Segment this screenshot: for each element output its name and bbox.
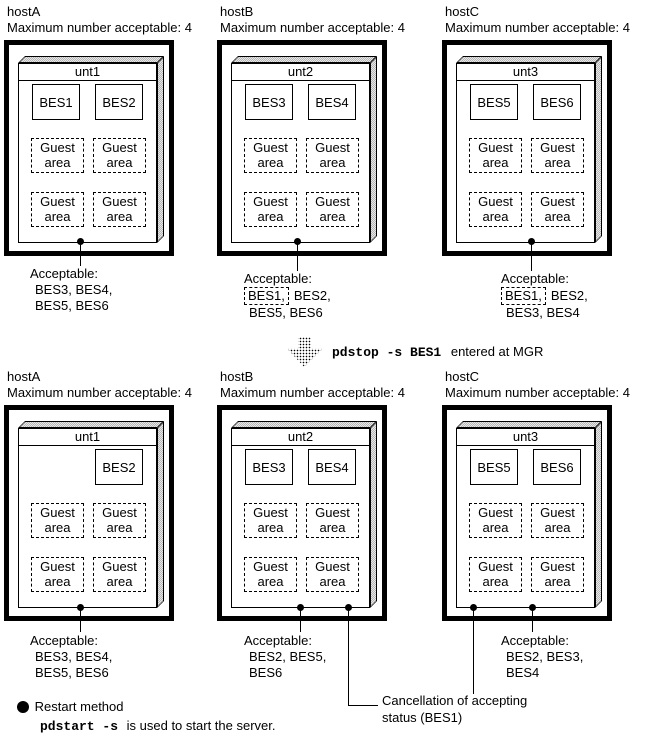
unit-3d-top-edge: [231, 56, 377, 63]
guest-area-grid: GuestareaGuestareaGuestareaGuestarea: [244, 503, 359, 592]
acceptable-title: Acceptable:: [30, 266, 112, 282]
guest-area-label: area: [32, 574, 83, 589]
acceptable-servers-text: BES5, BES6: [35, 665, 109, 680]
connector-dot: [528, 238, 535, 245]
bes-slot: BES5: [470, 84, 518, 120]
guest-area-label: area: [32, 209, 83, 224]
command-text: pdstop -s BES1: [332, 345, 441, 360]
guest-area-grid: GuestareaGuestareaGuestareaGuestarea: [469, 138, 584, 227]
connector-line: [531, 242, 532, 271]
unit-3d-right-edge: [157, 421, 164, 608]
bes-server-box: BES5: [470, 449, 518, 485]
bes-server-box: BES2: [95, 449, 143, 485]
guest-area-box: Guestarea: [531, 138, 584, 173]
connector-dot: [529, 604, 536, 611]
guest-area-label: Guest: [532, 505, 583, 520]
guest-area-label: Guest: [94, 559, 145, 574]
acceptable-line: BES2, BES3,: [506, 649, 583, 665]
acceptable-servers-text: BES2, BES3,: [506, 649, 583, 664]
host-box: unt2 BES3BES4 GuestareaGuestareaGuestare…: [217, 405, 387, 621]
bes-slot: BES4: [308, 84, 356, 120]
guest-area-label: Guest: [532, 559, 583, 574]
acceptable-line: BES5, BES6: [35, 665, 112, 681]
guest-area-box: Guestarea: [531, 557, 584, 592]
guest-area-grid: GuestareaGuestareaGuestareaGuestarea: [244, 138, 359, 227]
acceptable-line: BES4: [506, 665, 583, 681]
bes-slot: [32, 449, 80, 485]
guest-area-label: Guest: [94, 140, 145, 155]
diagram-canvas: pdstop -s BES1 entered at MGR Cancellati…: [0, 0, 652, 743]
acceptable-servers-text: BES5, BES6: [35, 298, 109, 313]
host-box: unt1 BES1BES2 GuestareaGuestareaGuestare…: [4, 40, 174, 256]
acceptable-servers-text: BES3, BES4,: [35, 282, 112, 297]
acceptable-title: Acceptable:: [244, 633, 326, 649]
connector-dot: [470, 604, 477, 611]
acceptable-title: Acceptable:: [244, 271, 331, 287]
restart-description: is used to start the server.: [127, 718, 276, 733]
bes-row: BES5BES6: [470, 449, 581, 485]
guest-area-grid: GuestareaGuestareaGuestareaGuestarea: [469, 503, 584, 592]
guest-area-label: area: [94, 520, 145, 535]
host-name-label: hostC: [445, 4, 479, 19]
guest-area-box: Guestarea: [244, 138, 297, 173]
guest-area-label: Guest: [470, 194, 521, 209]
guest-area-box: Guestarea: [469, 503, 522, 538]
connector-dot: [77, 238, 84, 245]
guest-area-grid: GuestareaGuestareaGuestareaGuestarea: [31, 503, 146, 592]
unit-3d-right-edge: [595, 421, 602, 608]
acceptable-note: Acceptable: BES2, BES3, BES4: [499, 633, 583, 681]
restart-title: Restart method: [35, 699, 124, 714]
guest-area-box: Guestarea: [31, 557, 84, 592]
bes-server-box: BES5: [470, 84, 518, 120]
cancellation-line: Cancellation of accepting: [382, 692, 527, 709]
guest-area-label: area: [307, 520, 358, 535]
unit-3d-top-edge: [18, 56, 164, 63]
guest-area-label: Guest: [307, 505, 358, 520]
host-name-label: hostB: [220, 369, 253, 384]
unit-name-label: unt1: [19, 64, 156, 81]
guest-area-box: Guestarea: [93, 557, 146, 592]
acceptable-note: Acceptable: BES2, BES5, BES6: [242, 633, 326, 681]
acceptable-servers-text: BES5, BES6: [249, 305, 323, 320]
connector-dot: [77, 604, 84, 611]
host-name-label: hostB: [220, 4, 253, 19]
guest-area-label: area: [94, 155, 145, 170]
unit-3d-top-edge: [456, 421, 602, 428]
guest-area-label: Guest: [245, 140, 296, 155]
guest-area-box: Guestarea: [531, 192, 584, 227]
guest-area-box: Guestarea: [93, 138, 146, 173]
bes-slot: BES3: [245, 449, 293, 485]
connector-line: [473, 608, 474, 694]
connector-dot: [297, 604, 304, 611]
guest-area-box: Guestarea: [306, 192, 359, 227]
bes-slot: BES5: [470, 449, 518, 485]
host-box: unt1 BES2 GuestareaGuestareaGuestareaGue…: [4, 405, 174, 621]
guest-area-label: area: [245, 520, 296, 535]
unit-3d-right-edge: [370, 421, 377, 608]
unit-name-label: unt3: [457, 64, 594, 81]
guest-area-label: area: [32, 155, 83, 170]
bes-row: BES3BES4: [245, 449, 356, 485]
guest-area-label: Guest: [32, 140, 83, 155]
acceptable-line: BES6: [249, 665, 326, 681]
guest-area-label: Guest: [94, 194, 145, 209]
unit-3d-right-edge: [370, 56, 377, 243]
bes-slot: BES2: [95, 84, 143, 120]
guest-area-box: Guestarea: [469, 557, 522, 592]
bes-slot: BES6: [533, 449, 581, 485]
down-arrow-icon: [287, 337, 323, 367]
unit-name-label: unt3: [457, 429, 594, 446]
bes-row: BES2: [32, 449, 143, 485]
acceptable-servers-text: BES2, BES5,: [249, 649, 326, 664]
guest-area-label: area: [307, 574, 358, 589]
unit-box: unt1 BES2 GuestareaGuestareaGuestareaGue…: [18, 428, 157, 608]
bes-server-box: BES4: [308, 84, 356, 120]
acceptable-servers-text: BES2,: [294, 288, 331, 303]
guest-area-label: area: [245, 574, 296, 589]
guest-area-box: Guestarea: [469, 192, 522, 227]
unit-box: unt2 BES3BES4 GuestareaGuestareaGuestare…: [231, 63, 370, 243]
connector-line: [80, 242, 81, 266]
guest-area-box: Guestarea: [31, 192, 84, 227]
connector-line: [348, 705, 378, 706]
guest-area-label: Guest: [32, 505, 83, 520]
acceptable-note: Acceptable: BES3, BES4, BES5, BES6: [28, 266, 112, 314]
guest-area-label: Guest: [470, 505, 521, 520]
guest-area-label: Guest: [245, 194, 296, 209]
bullet-icon: [17, 701, 29, 713]
guest-area-box: Guestarea: [244, 192, 297, 227]
guest-area-box: Guestarea: [31, 138, 84, 173]
guest-area-box: Guestarea: [93, 503, 146, 538]
bes-slot: BES2: [95, 449, 143, 485]
guest-area-box: Guestarea: [93, 192, 146, 227]
acceptable-title: Acceptable:: [501, 271, 588, 287]
bes-row: BES5BES6: [470, 84, 581, 120]
acceptable-note: Acceptable: BES1,BES2, BES5, BES6: [242, 271, 331, 321]
guest-area-label: area: [532, 155, 583, 170]
cancellation-note: Cancellation of accepting status (BES1): [382, 692, 527, 726]
unit-3d-right-edge: [157, 56, 164, 243]
highlighted-server-name: BES1,: [501, 287, 546, 305]
acceptable-line: BES1,BES2,: [501, 287, 588, 305]
guest-area-label: area: [94, 574, 145, 589]
connector-line: [532, 608, 533, 632]
unit-box: unt3 BES5BES6 GuestareaGuestareaGuestare…: [456, 428, 595, 608]
acceptable-note: Acceptable: BES3, BES4, BES5, BES6: [28, 633, 112, 681]
bes-slot: BES6: [533, 84, 581, 120]
connector-dot: [345, 604, 352, 611]
host-box: unt2 BES3BES4 GuestareaGuestareaGuestare…: [217, 40, 387, 256]
host-box: unt3 BES5BES6 GuestareaGuestareaGuestare…: [442, 40, 612, 256]
guest-area-label: area: [32, 520, 83, 535]
restart-description-row: pdstart -s is used to start the server.: [40, 718, 276, 734]
bes-slot: BES4: [308, 449, 356, 485]
host-name-label: hostC: [445, 369, 479, 384]
max-acceptable-label: Maximum number acceptable: 4: [7, 20, 192, 35]
guest-area-label: area: [94, 209, 145, 224]
guest-area-label: area: [470, 209, 521, 224]
bes-server-box: BES6: [533, 449, 581, 485]
highlighted-server-name: BES1,: [244, 287, 289, 305]
unit-box: unt2 BES3BES4 GuestareaGuestareaGuestare…: [231, 428, 370, 608]
guest-area-box: Guestarea: [31, 503, 84, 538]
bes-row: BES3BES4: [245, 84, 356, 120]
guest-area-label: area: [532, 209, 583, 224]
acceptable-line: BES5, BES6: [249, 305, 331, 321]
bes-server-box: BES6: [533, 84, 581, 120]
guest-area-label: Guest: [32, 559, 83, 574]
cancellation-line: status (BES1): [382, 709, 527, 726]
guest-area-label: Guest: [532, 194, 583, 209]
acceptable-line: BES3, BES4,: [35, 282, 112, 298]
command-suffix: entered at MGR: [451, 344, 544, 359]
connector-line: [300, 608, 301, 632]
guest-area-label: Guest: [470, 559, 521, 574]
acceptable-line: BES3, BES4,: [35, 649, 112, 665]
guest-area-label: area: [470, 574, 521, 589]
guest-area-label: Guest: [307, 559, 358, 574]
bes-server-box: BES3: [245, 449, 293, 485]
command-note: pdstop -s BES1 entered at MGR: [332, 344, 543, 360]
guest-area-label: area: [532, 574, 583, 589]
unit-name-label: unt1: [19, 429, 156, 446]
acceptable-servers-text: BES2,: [551, 288, 588, 303]
acceptable-line: BES5, BES6: [35, 298, 112, 314]
guest-area-grid: GuestareaGuestareaGuestareaGuestarea: [31, 138, 146, 227]
restart-command: pdstart -s: [40, 719, 118, 734]
host-box: unt3 BES5BES6 GuestareaGuestareaGuestare…: [442, 405, 612, 621]
acceptable-servers-text: BES3, BES4,: [35, 649, 112, 664]
bes-server-box: BES1: [32, 84, 80, 120]
acceptable-note: Acceptable: BES1,BES2, BES3, BES4: [499, 271, 588, 321]
max-acceptable-label: Maximum number acceptable: 4: [445, 20, 630, 35]
acceptable-title: Acceptable:: [30, 633, 112, 649]
restart-note: Restart method pdstart -s is used to sta…: [17, 699, 276, 734]
host-name-label: hostA: [7, 369, 40, 384]
guest-area-label: Guest: [245, 559, 296, 574]
unit-3d-right-edge: [595, 56, 602, 243]
guest-area-label: area: [470, 155, 521, 170]
guest-area-label: Guest: [307, 140, 358, 155]
acceptable-line: BES3, BES4: [506, 305, 588, 321]
guest-area-box: Guestarea: [306, 138, 359, 173]
bes-server-box: BES4: [308, 449, 356, 485]
max-acceptable-label: Maximum number acceptable: 4: [445, 385, 630, 400]
bes-server-box: BES2: [95, 84, 143, 120]
guest-area-label: Guest: [470, 140, 521, 155]
guest-area-box: Guestarea: [306, 557, 359, 592]
guest-area-box: Guestarea: [469, 138, 522, 173]
unit-box: unt1 BES1BES2 GuestareaGuestareaGuestare…: [18, 63, 157, 243]
acceptable-servers-text: BES4: [506, 665, 539, 680]
restart-title-row: Restart method: [17, 699, 276, 714]
max-acceptable-label: Maximum number acceptable: 4: [220, 385, 405, 400]
unit-3d-top-edge: [231, 421, 377, 428]
guest-area-box: Guestarea: [244, 503, 297, 538]
bes-server-box: BES3: [245, 84, 293, 120]
guest-area-label: Guest: [532, 140, 583, 155]
connector-dot: [294, 238, 301, 245]
max-acceptable-label: Maximum number acceptable: 4: [7, 385, 192, 400]
unit-name-label: unt2: [232, 429, 369, 446]
guest-area-label: area: [307, 155, 358, 170]
acceptable-title: Acceptable:: [501, 633, 583, 649]
guest-area-label: area: [307, 209, 358, 224]
guest-area-label: area: [532, 520, 583, 535]
guest-area-label: Guest: [245, 505, 296, 520]
connector-line: [348, 608, 349, 705]
max-acceptable-label: Maximum number acceptable: 4: [220, 20, 405, 35]
unit-name-label: unt2: [232, 64, 369, 81]
guest-area-label: area: [470, 520, 521, 535]
acceptable-line: BES2, BES5,: [249, 649, 326, 665]
guest-area-label: area: [245, 155, 296, 170]
guest-area-label: area: [245, 209, 296, 224]
guest-area-box: Guestarea: [306, 503, 359, 538]
host-name-label: hostA: [7, 4, 40, 19]
acceptable-servers-text: BES6: [249, 665, 282, 680]
acceptable-servers-text: BES3, BES4: [506, 305, 580, 320]
unit-box: unt3 BES5BES6 GuestareaGuestareaGuestare…: [456, 63, 595, 243]
bes-slot: BES3: [245, 84, 293, 120]
unit-3d-top-edge: [456, 56, 602, 63]
acceptable-line: BES1,BES2,: [244, 287, 331, 305]
guest-area-label: Guest: [94, 505, 145, 520]
guest-area-box: Guestarea: [531, 503, 584, 538]
guest-area-box: Guestarea: [244, 557, 297, 592]
connector-line: [80, 608, 81, 632]
guest-area-label: Guest: [307, 194, 358, 209]
unit-3d-top-edge: [18, 421, 164, 428]
bes-slot: BES1: [32, 84, 80, 120]
connector-line: [297, 242, 298, 271]
guest-area-label: Guest: [32, 194, 83, 209]
bes-row: BES1BES2: [32, 84, 143, 120]
